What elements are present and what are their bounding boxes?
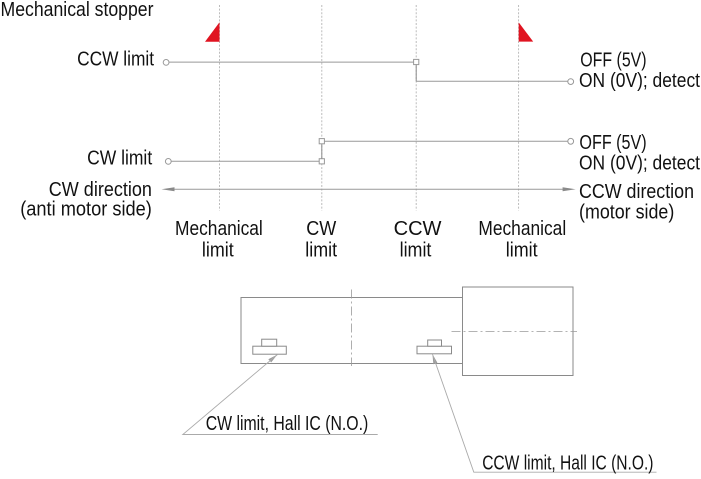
svg-text:CW: CW — [306, 218, 336, 240]
svg-text:OFF (5V): OFF (5V) — [579, 132, 646, 154]
svg-text:limit: limit — [305, 239, 337, 261]
svg-text:limit: limit — [202, 239, 234, 261]
svg-text:limit: limit — [400, 239, 432, 261]
svg-text:CW limit: CW limit — [87, 148, 152, 170]
svg-text:ON (0V); detect: ON (0V); detect — [579, 153, 700, 175]
svg-text:ON (0V); detect: ON (0V); detect — [579, 70, 700, 92]
svg-text:CCW direction: CCW direction — [579, 181, 694, 203]
svg-text:Mechanical: Mechanical — [175, 218, 263, 240]
svg-text:CCW limit: CCW limit — [77, 49, 154, 71]
svg-text:limit: limit — [506, 239, 538, 261]
svg-text:Mechanical stopper: Mechanical stopper — [1, 0, 154, 21]
svg-text:CCW: CCW — [394, 218, 442, 240]
svg-text:OFF (5V): OFF (5V) — [580, 49, 646, 71]
svg-text:Mechanical: Mechanical — [478, 218, 566, 240]
svg-text:(anti motor side): (anti motor side) — [20, 198, 152, 220]
svg-text:CW limit, Hall IC (N.O.): CW limit, Hall IC (N.O.) — [206, 413, 369, 435]
svg-text:(motor side): (motor side) — [579, 202, 674, 224]
svg-text:CCW limit, Hall IC (N.O.): CCW limit, Hall IC (N.O.) — [482, 453, 653, 475]
